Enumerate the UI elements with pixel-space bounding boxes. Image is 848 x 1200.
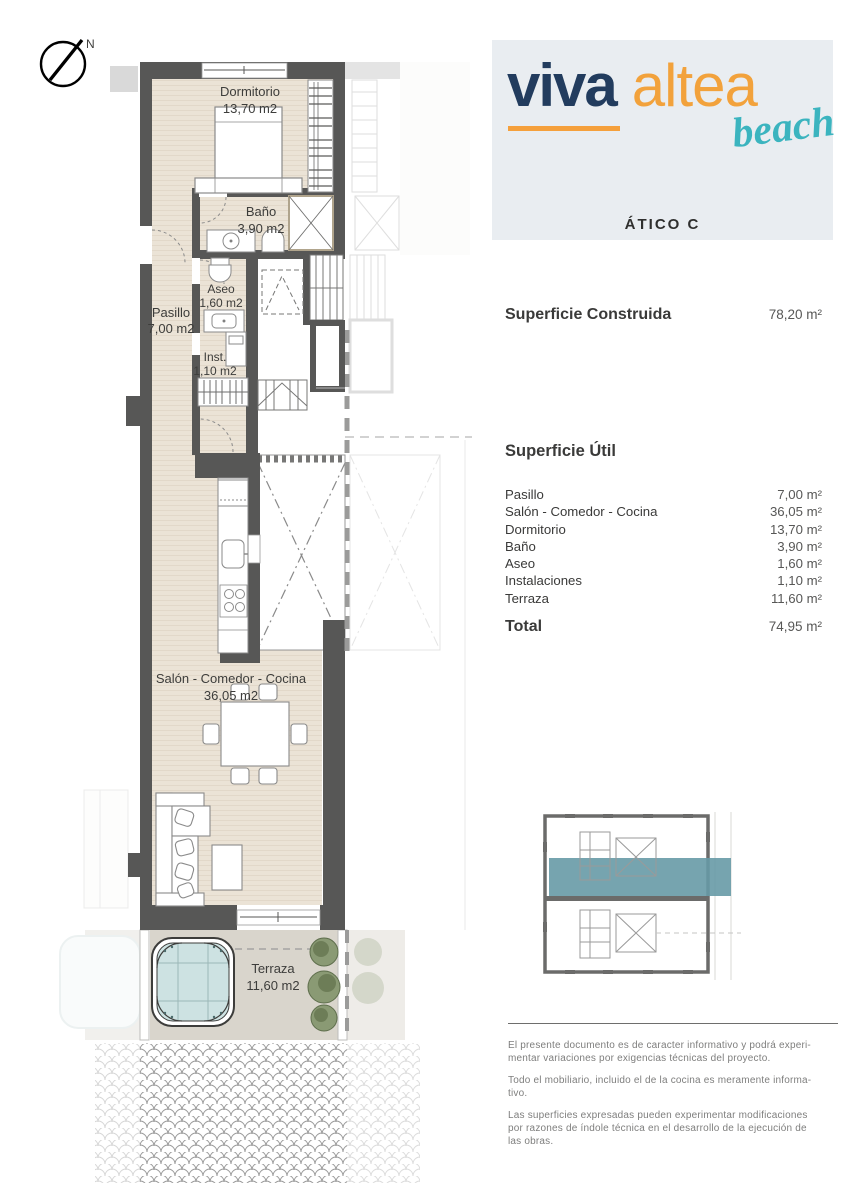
label-salon-area: 36,05 m2: [204, 688, 258, 703]
label-dormitorio: Dormitorio: [220, 84, 280, 99]
brochure-page: N: [0, 0, 848, 1200]
label-inst-area: 1,10 m2: [193, 364, 237, 378]
table-row: Dormitorio 13,70 m²: [505, 521, 822, 538]
superficie-util-table: Pasillo 7,00 m² Salón - Comedor - Cocina…: [505, 486, 822, 607]
label-inst: Inst.: [204, 350, 227, 364]
construida-label: Superficie Construida: [505, 306, 671, 324]
coffee-table: [212, 845, 242, 890]
table-row: Baño 3,90 m²: [505, 538, 822, 555]
label-bano-area: 3,90 m2: [238, 221, 285, 236]
kitchen: [218, 478, 248, 653]
label-pasillo-area: 7,00 m2: [148, 321, 195, 336]
jacuzzi: [152, 938, 234, 1026]
label-dormitorio-area: 13,70 m2: [223, 101, 277, 116]
logo-underline: [508, 126, 620, 131]
label-salon: Salón - Comedor - Cocina: [156, 671, 307, 686]
key-plan-highlight: [549, 858, 731, 896]
north-arrow-icon: N: [41, 37, 95, 86]
label-aseo: Aseo: [207, 282, 235, 296]
construida-value: 78,20 m²: [769, 307, 822, 322]
disclaimer: El presente documento es de caracter inf…: [508, 1040, 838, 1158]
floor-plan: N: [0, 0, 480, 1200]
unit-name: ÁTICO C: [492, 216, 833, 233]
superficie-util-heading: Superficie Útil: [505, 442, 616, 461]
key-plan: [543, 812, 748, 984]
superficie-construida-row: Superficie Construida 78,20 m²: [505, 306, 822, 324]
label-pasillo: Pasillo: [152, 305, 190, 320]
disclaimer-paragraph: Las superficies expresadas pueden experi…: [508, 1110, 838, 1148]
logo: viva altea: [507, 56, 757, 116]
table-row: Pasillo 7,00 m²: [505, 486, 822, 503]
logo-viva: viva: [507, 56, 616, 116]
table-row: Salón - Comedor - Cocina 36,05 m²: [505, 503, 822, 520]
label-bano: Baño: [246, 204, 276, 219]
table-row: Terraza 11,60 m²: [505, 590, 822, 607]
brand-panel: viva altea beach ÁTICO C: [492, 40, 833, 240]
north-label: N: [86, 37, 95, 51]
plants: [308, 938, 340, 1031]
wardrobe: [308, 80, 333, 192]
terrace-railing-left: [140, 930, 149, 1040]
neighbour-unit-faded: [345, 62, 470, 930]
table-row: Aseo 1,60 m²: [505, 555, 822, 572]
table-row: Instalaciones 1,10 m²: [505, 572, 822, 589]
total-row: Total 74,95 m²: [505, 618, 822, 636]
label-aseo-area: 1,60 m2: [199, 296, 243, 310]
label-terraza: Terraza: [251, 961, 295, 976]
logo-altea: altea: [632, 56, 757, 116]
disclaimer-paragraph: El presente documento es de caracter inf…: [508, 1040, 838, 1065]
total-label: Total: [505, 618, 542, 636]
elevator: [310, 320, 345, 392]
ground-pattern: [95, 1043, 420, 1183]
pillar-topleft: [110, 66, 138, 92]
neighbour-left-faded: [60, 790, 140, 1040]
disclaimer-paragraph: Todo el mobiliario, incluido el de la co…: [508, 1075, 838, 1100]
total-value: 74,95 m²: [769, 619, 822, 634]
footer-divider: [508, 1023, 838, 1024]
label-terraza-area: 11,60 m2: [246, 978, 299, 993]
